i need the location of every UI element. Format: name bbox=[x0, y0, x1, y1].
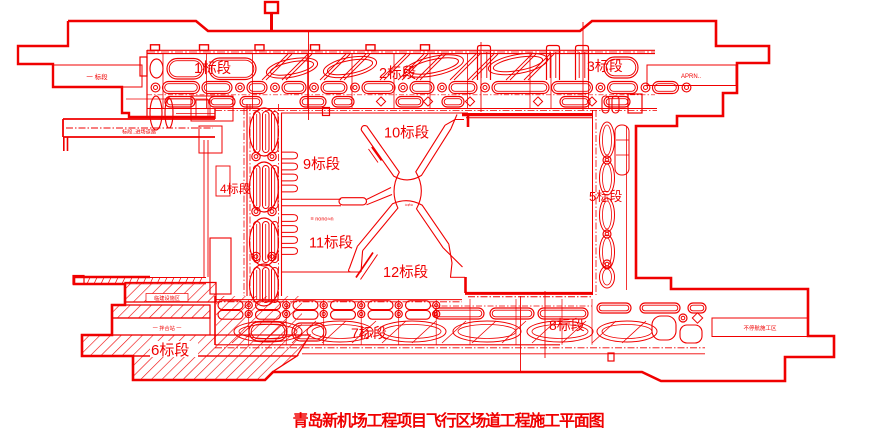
svg-text:2标段: 2标段 bbox=[379, 65, 416, 82]
svg-text:1标段: 1标段 bbox=[194, 60, 231, 77]
svg-text:一 标段: 一 标段 bbox=[86, 72, 108, 81]
svg-text:APRN..: APRN.. bbox=[681, 74, 701, 80]
svg-text:7标段: 7标段 bbox=[351, 325, 387, 341]
svg-text:≡ nono≈n: ≡ nono≈n bbox=[310, 217, 333, 223]
svg-text:3标段: 3标段 bbox=[587, 58, 623, 74]
svg-text:临建设施区: 临建设施区 bbox=[154, 294, 180, 302]
svg-text:4标段: 4标段 bbox=[220, 181, 251, 196]
svg-text:11标段: 11标段 bbox=[309, 235, 353, 252]
svg-text:6标段: 6标段 bbox=[151, 342, 189, 359]
svg-text:12标段: 12标段 bbox=[383, 264, 428, 281]
svg-text:青岛新机场工程项目飞行区场道工程施工平面图: 青岛新机场工程项目飞行区场道工程施工平面图 bbox=[293, 411, 604, 430]
svg-text:不停航施工区: 不停航施工区 bbox=[743, 324, 777, 332]
svg-text:一 拌合站 一: 一 拌合站 一 bbox=[153, 324, 182, 332]
svg-text:8标段: 8标段 bbox=[549, 317, 585, 333]
svg-text:5标段: 5标段 bbox=[589, 189, 622, 204]
svg-text:≈≠≈: ≈≠≈ bbox=[405, 203, 413, 209]
svg-text:9标段: 9标段 bbox=[303, 156, 340, 173]
svg-text:标段..进场道路: 标段..进场道路 bbox=[122, 128, 157, 136]
svg-text:10标段: 10标段 bbox=[384, 125, 429, 142]
